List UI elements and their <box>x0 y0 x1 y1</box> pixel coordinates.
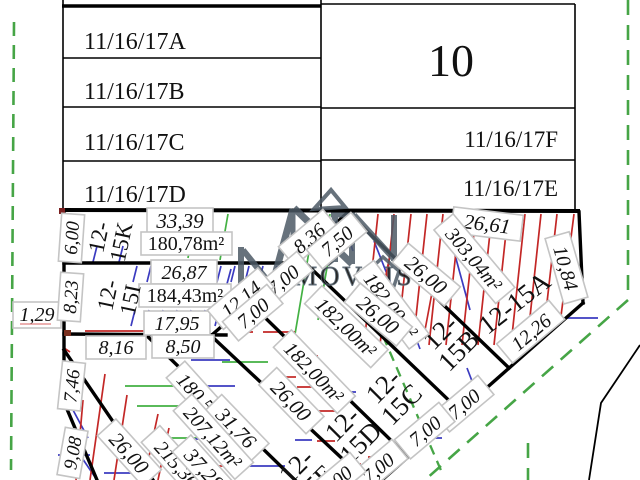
svg-text:184,43m²: 184,43m² <box>147 285 224 307</box>
svg-text:11/16/17F: 11/16/17F <box>464 127 558 152</box>
svg-text:11/16/17B: 11/16/17B <box>84 79 184 105</box>
svg-text:26,87: 26,87 <box>162 262 208 284</box>
svg-text:11/16/17A: 11/16/17A <box>84 29 186 55</box>
svg-text:10: 10 <box>428 35 474 86</box>
svg-text:8,50: 8,50 <box>166 336 201 358</box>
svg-text:11/16/17C: 11/16/17C <box>84 130 184 156</box>
svg-text:33,39: 33,39 <box>155 209 204 233</box>
svg-text:6,00: 6,00 <box>61 220 84 255</box>
svg-text:180,78m²: 180,78m² <box>148 233 225 255</box>
svg-text:7,46: 7,46 <box>60 368 84 404</box>
svg-text:8,23: 8,23 <box>60 280 83 315</box>
svg-text:11/16/17D: 11/16/17D <box>84 182 186 208</box>
svg-text:8,16: 8,16 <box>99 337 134 359</box>
svg-text:17,95: 17,95 <box>155 313 200 335</box>
svg-text:1,29: 1,29 <box>20 304 55 326</box>
svg-text:11/16/17E: 11/16/17E <box>463 176 558 201</box>
